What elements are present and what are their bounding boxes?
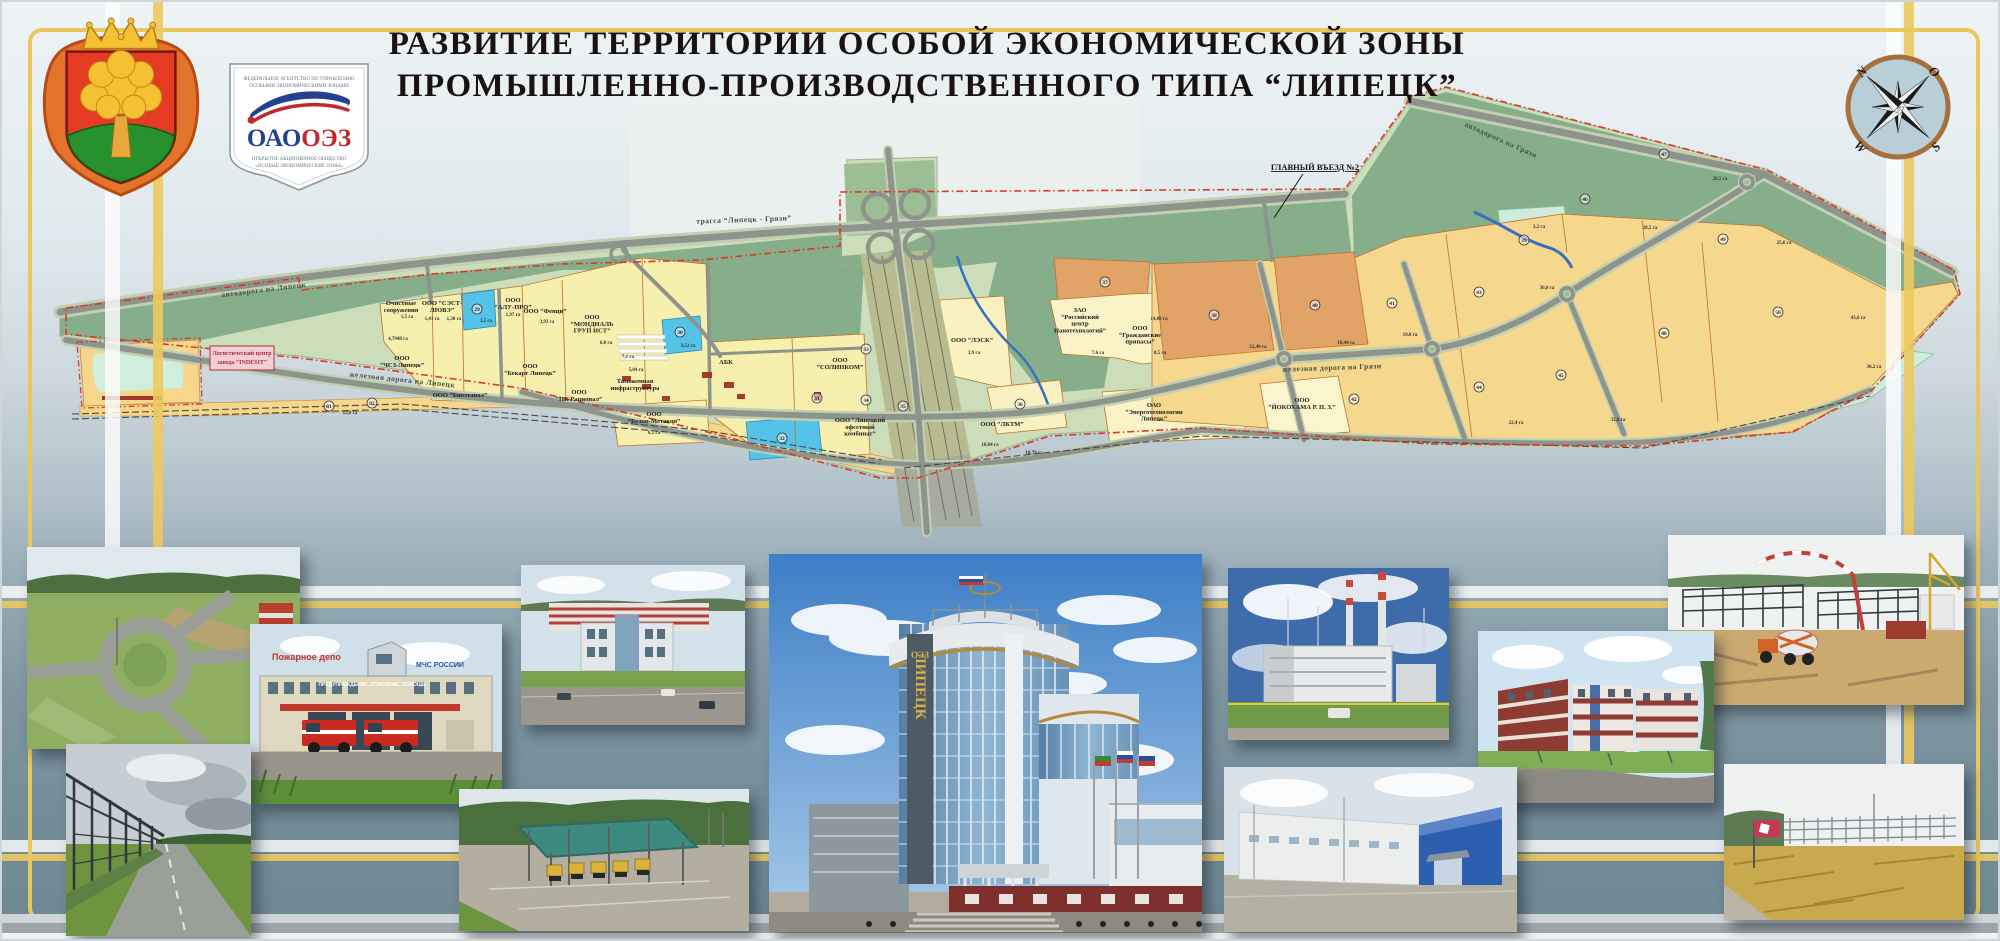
indesit-callout: Логистический центр завода “INDESIT”	[210, 346, 274, 370]
parcel-area-label: 14,88 га	[1150, 317, 1168, 322]
parcel-number: 46	[1582, 197, 1588, 203]
compass-rose: N O S W	[1843, 52, 1953, 167]
title-line1: РАЗВИТИЕ ТЕРРИТОРИИ ОСОБОЙ ЭКОНОМИЧЕСКОЙ…	[362, 24, 1492, 66]
photo-pipe-rack-road	[66, 744, 251, 936]
parcel-area-label: 43,6 га	[1851, 316, 1866, 321]
footer-band-3	[2, 933, 2000, 939]
parcel-number: 29	[474, 307, 480, 313]
poster-root: Логистический центр завода “INDESIT” ГЛА…	[0, 0, 2000, 941]
parcel-company-label: ООО “ЛКТМ”	[980, 421, 1023, 428]
parcel-area-label: 1,5 га	[401, 315, 414, 320]
parcel-area-label: 22,4 га	[1509, 421, 1524, 426]
photo-blue-warehouse	[1224, 767, 1517, 932]
parcel-number: 40	[1312, 303, 1318, 309]
parcel-number: 49	[1720, 237, 1726, 243]
oaooez-logo-badge: ФЕДЕРАЛЬНОЕ АГЕНТСТВО ПО УПРАВЛЕНИЮ ОСОБ…	[224, 58, 374, 199]
svg-text:Логистический центр: Логистический центр	[212, 350, 272, 357]
parcel-area-label: 6,8 га	[600, 341, 613, 346]
sub-line1: ОТКРЫТОЕ АКЦИОНЕРНОЕ ОБЩЕСТВО	[252, 157, 347, 162]
parcel-number: 47	[1661, 152, 1667, 158]
parcel-company-label: ООО “ЛЭСК”	[951, 337, 993, 344]
parcel-number: 36	[1017, 402, 1023, 408]
photo-field-framework	[1724, 764, 1964, 920]
parcel-number: 35	[900, 404, 906, 410]
parcel-company-label: АБК	[719, 359, 733, 366]
parcel-area-label: 10,79 га	[1025, 451, 1043, 456]
parcel-area-label: 8,5 га	[1154, 351, 1167, 356]
parcel-area-label: 10,04 га	[981, 443, 999, 448]
building-vertical-sign: ЛИПЕЦК	[912, 652, 928, 719]
page-title: РАЗВИТИЕ ТЕРРИТОРИИ ОСОБОЙ ЭКОНОМИЧЕСКОЙ…	[362, 24, 1492, 107]
parcel-area-label: 1,30 га	[447, 317, 462, 322]
russia-flag-icon	[959, 576, 983, 585]
parcel-number: 50	[1775, 310, 1781, 316]
parcel-number: 81	[326, 404, 332, 410]
parcel-area-label: 19,0 га	[1403, 333, 1418, 338]
parcel-area-label: 36,2 га	[1867, 365, 1882, 370]
brand-text: ОАООЭЗ	[247, 125, 351, 152]
fire-station-sign: Пожарное депо	[272, 652, 341, 662]
parcel-area-label: 4,7948 га	[388, 337, 408, 342]
tree-trunk	[111, 116, 131, 158]
parcel-area-label: 3,9 га	[968, 351, 981, 356]
parcel-area-label: 3,52 га	[681, 344, 696, 349]
parcel-area-label: 7,1 га	[622, 355, 635, 360]
parcel-area-label: 3,5 га	[480, 319, 493, 324]
parcel-number: 32	[779, 436, 785, 442]
parcel-number: 31	[814, 396, 820, 402]
parcel-area-label: 3,93 га	[540, 320, 555, 325]
parcel-area-label: 7,6 га	[1092, 351, 1105, 356]
parcel-area-label: 5,04 га	[629, 368, 644, 373]
parcel-area-label: 3,2 га	[1533, 225, 1546, 230]
parcel-company-label: Таможеннаяинфраструктура	[611, 378, 661, 392]
parcel-area-label: 12,6 га	[343, 411, 358, 416]
title-line2: ПРОМЫШЛЕННО-ПРОИЗВОДСТВЕННОГО ТИПА “ЛИПЕ…	[362, 66, 1492, 108]
parcel-number: 34	[863, 398, 869, 404]
parcel-area-label: 18,44 га	[1337, 341, 1355, 346]
svg-text:завода “INDESIT”: завода “INDESIT”	[217, 360, 267, 366]
parcel-company-label: ООО “Фенци”	[524, 308, 567, 315]
parcel-area-label: 6,5 га	[648, 431, 661, 436]
parcel-number: 42	[1351, 397, 1357, 403]
parcel-number: 39	[1521, 238, 1527, 244]
parcel-number: 82	[369, 401, 375, 407]
parcel-area-label: 32,6 га	[1611, 418, 1626, 423]
parcel-area-label: 25,6 га	[1777, 241, 1792, 246]
parcel-number: 33	[863, 347, 869, 353]
parcel-area-label: 36,0 га	[1540, 286, 1555, 291]
agency-line1: ФЕДЕРАЛЬНОЕ АГЕНТСТВО ПО УПРАВЛЕНИЮ	[243, 77, 354, 82]
parcel-number: 30	[677, 330, 683, 336]
photo-weighbridge	[459, 789, 749, 931]
photo-fire-station: Пожарное депо МЧС РОССИИ ПРЕДУПРЕЖДЕНИЕ,…	[250, 624, 502, 804]
parcel-area-label: 1,41 га	[425, 317, 440, 322]
lipetsk-coat-of-arms	[32, 12, 210, 205]
photo-oez-admin-building: ОЭЗ ЛИПЕЦК	[769, 554, 1202, 932]
parcel-number: 43	[1476, 290, 1482, 296]
parcel-number: 41	[1389, 301, 1395, 307]
fire-station-mchs-sign: МЧС РОССИИ	[416, 662, 464, 669]
agency-line2: ОСОБЫМИ ЭКОНОМИЧЕСКИМИ ЗОНАМИ	[249, 84, 349, 89]
parcel-number: 45	[1558, 373, 1564, 379]
parcel-number: 44	[1476, 385, 1482, 391]
parcel-area-label: 26,5 га	[1713, 177, 1728, 182]
parcel-company-label: Очистныесооружения	[384, 300, 419, 314]
parcel-area-label: 1,97 га	[506, 313, 521, 318]
photo-power-plant	[1228, 568, 1449, 740]
parcel-number: 37	[1102, 280, 1108, 286]
parcel-area-label: 28,5 га	[1643, 226, 1658, 231]
parcel-company-label: ООО “Биоэтанол”	[433, 392, 488, 399]
photo-office-building	[521, 565, 745, 725]
parcel-number: 48	[1661, 331, 1667, 337]
compass-star-icon	[1862, 71, 1933, 142]
svg-text:ГЛАВНЫЙ ВЪЕЗД №2: ГЛАВНЫЙ ВЪЕЗД №2	[1271, 162, 1359, 172]
parcel-number: 38	[1211, 313, 1217, 319]
sub-line2: «ОСОБЫЕ ЭКОНОМИЧЕСКИЕ ЗОНЫ»	[255, 164, 343, 169]
fire-station-banner: ПРЕДУПРЕЖДЕНИЕ, СПАСЕНИЕ, ПОМОЩЬ	[284, 682, 460, 688]
parcel-area-label: 22,48 га	[1249, 345, 1267, 350]
